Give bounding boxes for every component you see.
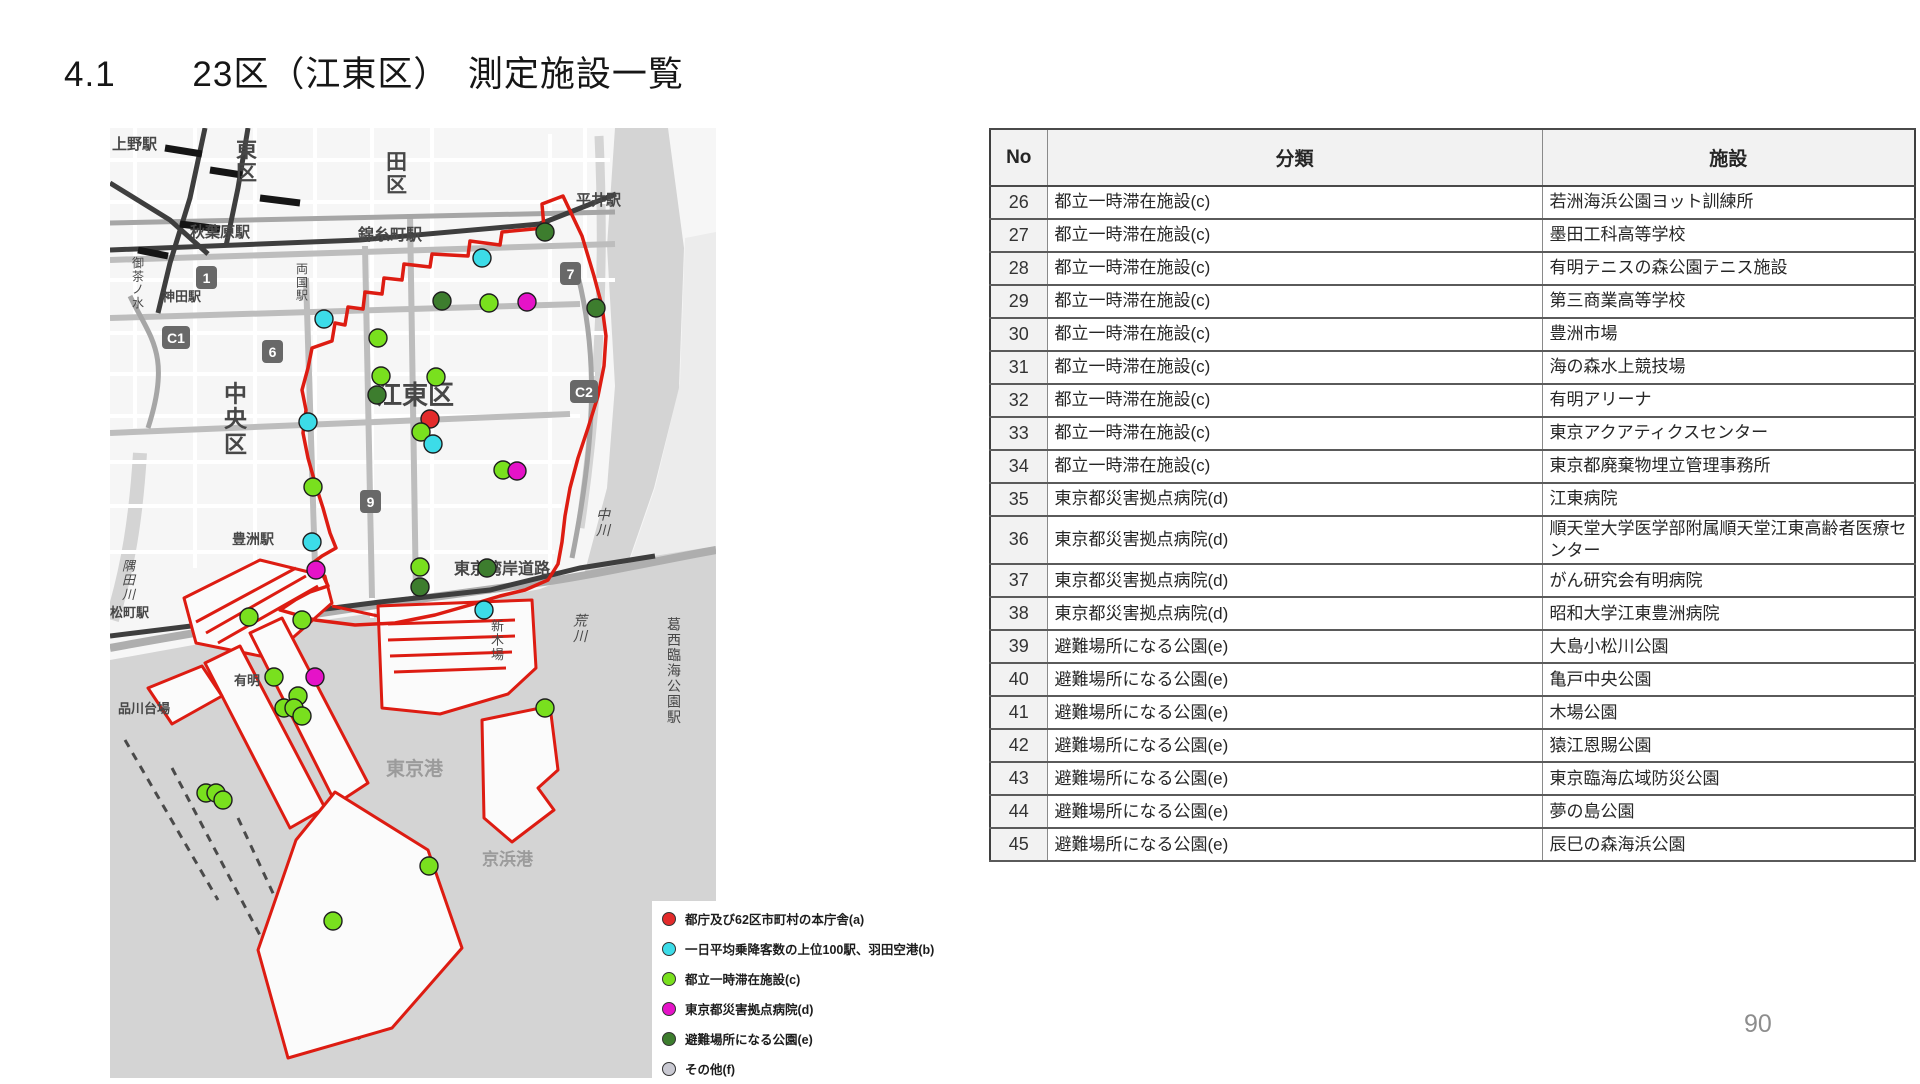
facility-marker-c	[369, 329, 387, 347]
facility-marker-c	[265, 668, 283, 686]
table-row: 42避難場所になる公園(e)猿江恩賜公園	[990, 729, 1915, 762]
facility-marker-c	[304, 478, 322, 496]
cell-facility: 第三商業高等学校	[1542, 285, 1915, 318]
facility-marker-d	[508, 462, 526, 480]
legend-label: 都立一時滞在施設(c)	[685, 969, 800, 988]
table-row: 36東京都災害拠点病院(d)順天堂大学医学部附属順天堂江東高齢者医療センター	[990, 516, 1915, 564]
cell-no: 31	[990, 351, 1047, 384]
route-shield: C2	[570, 380, 598, 403]
map-label: 秋葉原駅	[190, 223, 251, 241]
cell-facility: 有明テニスの森公園テニス施設	[1542, 252, 1915, 285]
table-row: 35東京都災害拠点病院(d)江東病院	[990, 483, 1915, 516]
facility-marker-c	[372, 367, 390, 385]
cell-no: 36	[990, 516, 1047, 564]
map-label: 荒川	[573, 612, 589, 643]
cell-no: 34	[990, 450, 1047, 483]
legend-label: その他(f)	[685, 1059, 735, 1078]
svg-text:9: 9	[367, 494, 375, 510]
cell-no: 26	[990, 186, 1047, 219]
cell-facility: 木場公園	[1542, 696, 1915, 729]
legend-item: 都庁及び62区市町村の本庁舎(a)	[662, 909, 962, 928]
route-shield: 1	[196, 266, 217, 289]
facility-table-wrap: No 分類 施設 26都立一時滞在施設(c)若洲海浜公園ヨット訓練所27都立一時…	[989, 128, 1914, 862]
cell-facility: 東京臨海広域防災公園	[1542, 762, 1915, 795]
koto-ward-map: 上野駅東区田区平井駅秋葉原駅錦糸町駅御茶ノ水両国駅神田駅中央区江東区豊洲駅隅田川…	[110, 128, 716, 1078]
cell-facility: 東京アクアティクスセンター	[1542, 417, 1915, 450]
svg-text:C2: C2	[575, 384, 593, 400]
table-header-row: No 分類 施設	[990, 129, 1915, 186]
cell-facility: 東京都廃棄物埋立管理事務所	[1542, 450, 1915, 483]
cell-no: 40	[990, 663, 1047, 696]
facility-marker-b	[424, 435, 442, 453]
map-label: 有明	[234, 673, 260, 688]
table-row: 27都立一時滞在施設(c)墨田工科高等学校	[990, 219, 1915, 252]
header-category: 分類	[1047, 129, 1542, 186]
map-label: 東京港	[386, 757, 444, 780]
cell-facility: 墨田工科高等学校	[1542, 219, 1915, 252]
cell-facility: 海の森水上競技場	[1542, 351, 1915, 384]
svg-text:C1: C1	[167, 330, 185, 346]
table-row: 29都立一時滞在施設(c)第三商業高等学校	[990, 285, 1915, 318]
table-row: 38東京都災害拠点病院(d)昭和大学江東豊洲病院	[990, 597, 1915, 630]
facility-marker-d	[306, 668, 324, 686]
svg-text:1: 1	[203, 270, 211, 286]
cell-category: 都立一時滞在施設(c)	[1047, 186, 1542, 219]
legend-marker-icon-d	[662, 1002, 676, 1016]
map-label: 中川	[596, 506, 612, 537]
map-label: 東京湾岸道路	[454, 559, 551, 578]
map-label: 両国駅	[296, 262, 308, 302]
cell-no: 38	[990, 597, 1047, 630]
facility-marker-c	[536, 699, 554, 717]
cell-no: 29	[990, 285, 1047, 318]
legend-label: 都庁及び62区市町村の本庁舎(a)	[685, 909, 864, 928]
cell-facility: 猿江恩賜公園	[1542, 729, 1915, 762]
route-shield: 7	[560, 262, 581, 285]
legend-label: 避難場所になる公園(e)	[685, 1029, 813, 1048]
map-label: 御茶ノ水	[132, 255, 144, 310]
facility-marker-b	[303, 533, 321, 551]
table-row: 33都立一時滞在施設(c)東京アクアティクスセンター	[990, 417, 1915, 450]
table-row: 45避難場所になる公園(e)辰巳の森海浜公園	[990, 828, 1915, 861]
facility-marker-c	[427, 368, 445, 386]
map-label: 豊洲駅	[232, 531, 275, 547]
map-label: 錦糸町駅	[358, 225, 423, 244]
facility-marker-e	[368, 386, 386, 404]
route-shield: 9	[360, 490, 381, 513]
cell-category: 都立一時滞在施設(c)	[1047, 450, 1542, 483]
facility-marker-c	[293, 611, 311, 629]
map-label: 松町駅	[110, 605, 150, 620]
cell-facility: 辰巳の森海浜公園	[1542, 828, 1915, 861]
facility-marker-b	[473, 249, 491, 267]
facility-marker-e	[478, 559, 496, 577]
map-label: 江東区	[376, 380, 454, 410]
facility-marker-e	[587, 299, 605, 317]
cell-no: 45	[990, 828, 1047, 861]
cell-no: 37	[990, 564, 1047, 597]
map-label: 新木場	[491, 618, 504, 662]
cell-category: 都立一時滞在施設(c)	[1047, 285, 1542, 318]
facility-marker-b	[315, 310, 333, 328]
facility-marker-b	[299, 413, 317, 431]
cell-category: 避難場所になる公園(e)	[1047, 663, 1542, 696]
header-facility: 施設	[1542, 129, 1915, 186]
cell-category: 避難場所になる公園(e)	[1047, 630, 1542, 663]
cell-no: 42	[990, 729, 1047, 762]
cell-no: 32	[990, 384, 1047, 417]
route-shield: C1	[162, 326, 190, 349]
table-row: 26都立一時滞在施設(c)若洲海浜公園ヨット訓練所	[990, 186, 1915, 219]
legend-label: 東京都災害拠点病院(d)	[685, 999, 813, 1018]
map-figure: 上野駅東区田区平井駅秋葉原駅錦糸町駅御茶ノ水両国駅神田駅中央区江東区豊洲駅隅田川…	[110, 128, 716, 1078]
cell-category: 避難場所になる公園(e)	[1047, 795, 1542, 828]
svg-text:6: 6	[269, 344, 277, 360]
legend-marker-icon-e	[662, 1032, 676, 1046]
cell-no: 41	[990, 696, 1047, 729]
map-label: 田区	[386, 151, 407, 197]
map-label: 平井駅	[576, 191, 622, 209]
cell-no: 39	[990, 630, 1047, 663]
table-row: 43避難場所になる公園(e)東京臨海広域防災公園	[990, 762, 1915, 795]
table-row: 44避難場所になる公園(e)夢の島公園	[990, 795, 1915, 828]
cell-facility: 江東病院	[1542, 483, 1915, 516]
facility-table: No 分類 施設 26都立一時滞在施設(c)若洲海浜公園ヨット訓練所27都立一時…	[989, 128, 1916, 862]
legend-item: 一日平均乗降客数の上位100駅、羽田空港(b)	[662, 939, 962, 958]
cell-category: 都立一時滞在施設(c)	[1047, 219, 1542, 252]
cell-category: 東京都災害拠点病院(d)	[1047, 564, 1542, 597]
cell-category: 避難場所になる公園(e)	[1047, 762, 1542, 795]
legend-item: 避難場所になる公園(e)	[662, 1029, 962, 1048]
cell-category: 都立一時滞在施設(c)	[1047, 351, 1542, 384]
cell-no: 33	[990, 417, 1047, 450]
table-row: 28都立一時滞在施設(c)有明テニスの森公園テニス施設	[990, 252, 1915, 285]
cell-category: 避難場所になる公園(e)	[1047, 828, 1542, 861]
cell-facility: 順天堂大学医学部附属順天堂江東高齢者医療センター	[1542, 516, 1915, 564]
facility-marker-c	[480, 294, 498, 312]
cell-facility: 夢の島公園	[1542, 795, 1915, 828]
section-title: 23区（江東区） 測定施設一覧	[192, 46, 683, 97]
cell-category: 都立一時滞在施設(c)	[1047, 252, 1542, 285]
facility-table-body: 26都立一時滞在施設(c)若洲海浜公園ヨット訓練所27都立一時滞在施設(c)墨田…	[990, 186, 1915, 861]
facility-marker-d	[518, 293, 536, 311]
cell-facility: 昭和大学江東豊洲病院	[1542, 597, 1915, 630]
cell-no: 28	[990, 252, 1047, 285]
facility-marker-b	[475, 601, 493, 619]
cell-no: 35	[990, 483, 1047, 516]
legend-item: その他(f)	[662, 1059, 962, 1078]
facility-marker-c	[293, 707, 311, 725]
cell-facility: 亀戸中央公園	[1542, 663, 1915, 696]
route-shield: 6	[262, 340, 283, 363]
page-title: 4.1 23区（江東区） 測定施設一覧	[64, 46, 684, 97]
cell-facility: がん研究会有明病院	[1542, 564, 1915, 597]
facility-marker-c	[214, 791, 232, 809]
table-row: 40避難場所になる公園(e)亀戸中央公園	[990, 663, 1915, 696]
svg-text:7: 7	[567, 266, 575, 282]
cell-facility: 豊洲市場	[1542, 318, 1915, 351]
map-label: 京浜港	[482, 849, 534, 869]
table-row: 41避難場所になる公園(e)木場公園	[990, 696, 1915, 729]
facility-marker-e	[536, 223, 554, 241]
map-label: 品川台場	[118, 701, 170, 716]
legend-marker-icon-a	[662, 912, 676, 926]
legend-item: 東京都災害拠点病院(d)	[662, 999, 962, 1018]
cell-facility: 有明アリーナ	[1542, 384, 1915, 417]
legend-marker-icon-f	[662, 1062, 676, 1076]
table-row: 31都立一時滞在施設(c)海の森水上競技場	[990, 351, 1915, 384]
legend-marker-icon-c	[662, 972, 676, 986]
map-label: 神田駅	[162, 289, 202, 304]
facility-marker-c	[411, 558, 429, 576]
section-number: 4.1	[64, 55, 116, 95]
cell-category: 都立一時滞在施設(c)	[1047, 417, 1542, 450]
cell-facility: 大島小松川公園	[1542, 630, 1915, 663]
legend-label: 一日平均乗降客数の上位100駅、羽田空港(b)	[685, 939, 934, 958]
cell-facility: 若洲海浜公園ヨット訓練所	[1542, 186, 1915, 219]
cell-no: 43	[990, 762, 1047, 795]
cell-no: 30	[990, 318, 1047, 351]
cell-category: 都立一時滞在施設(c)	[1047, 318, 1542, 351]
facility-marker-c	[240, 608, 258, 626]
facility-marker-c	[420, 857, 438, 875]
facility-marker-e	[411, 578, 429, 596]
cell-category: 東京都災害拠点病院(d)	[1047, 483, 1542, 516]
table-row: 34都立一時滞在施設(c)東京都廃棄物埋立管理事務所	[990, 450, 1915, 483]
table-row: 30都立一時滞在施設(c)豊洲市場	[990, 318, 1915, 351]
map-label: 隅田川	[122, 558, 137, 602]
map-label: 中央区	[224, 380, 248, 457]
cell-category: 東京都災害拠点病院(d)	[1047, 516, 1542, 564]
cell-category: 避難場所になる公園(e)	[1047, 696, 1542, 729]
cell-no: 27	[990, 219, 1047, 252]
header-no: No	[990, 129, 1047, 186]
table-row: 37東京都災害拠点病院(d)がん研究会有明病院	[990, 564, 1915, 597]
map-label: 上野駅	[112, 136, 158, 153]
legend-marker-icon-b	[662, 942, 676, 956]
legend-item: 都立一時滞在施設(c)	[662, 969, 962, 988]
cell-category: 都立一時滞在施設(c)	[1047, 384, 1542, 417]
cell-no: 44	[990, 795, 1047, 828]
facility-marker-d	[307, 561, 325, 579]
table-row: 32都立一時滞在施設(c)有明アリーナ	[990, 384, 1915, 417]
facility-marker-e	[433, 292, 451, 310]
map-label: 葛西臨海公園駅	[667, 616, 681, 724]
facility-marker-c	[324, 912, 342, 930]
table-row: 39避難場所になる公園(e)大島小松川公園	[990, 630, 1915, 663]
map-legend: 都庁及び62区市町村の本庁舎(a)一日平均乗降客数の上位100駅、羽田空港(b)…	[652, 901, 968, 1084]
cell-category: 東京都災害拠点病院(d)	[1047, 597, 1542, 630]
page-number: 90	[1744, 1010, 1772, 1039]
cell-category: 避難場所になる公園(e)	[1047, 729, 1542, 762]
map-label: 東区	[236, 139, 257, 185]
